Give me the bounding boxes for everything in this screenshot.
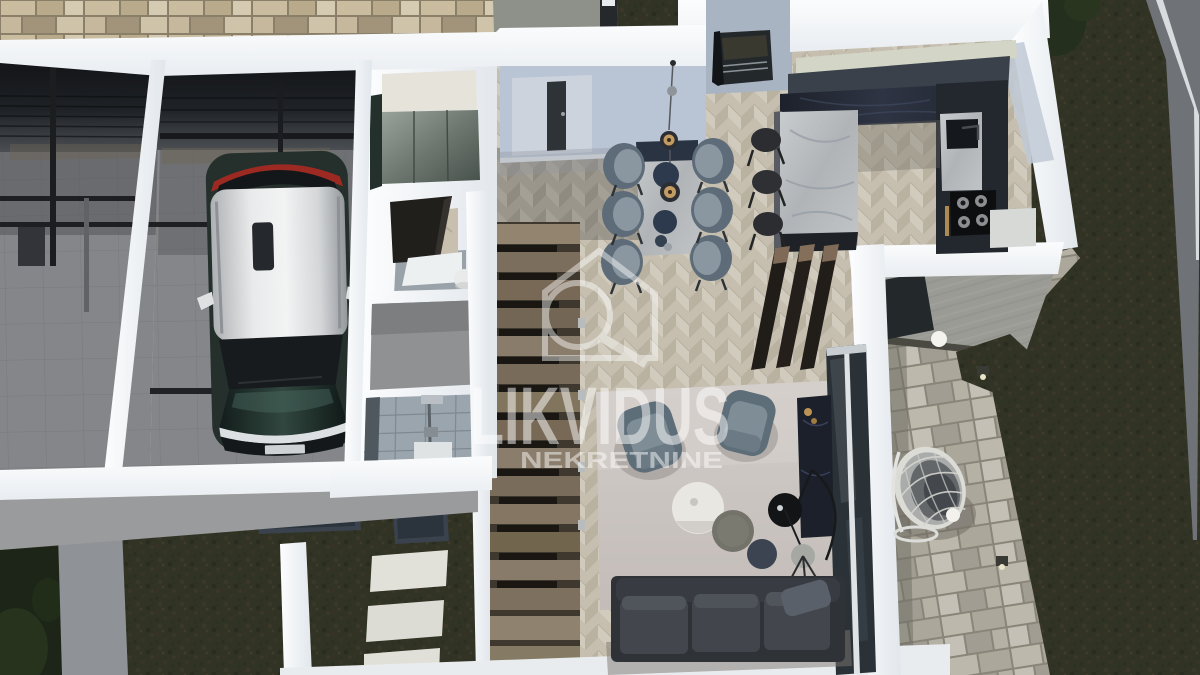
svg-text:NEKRETNINE: NEKRETNINE <box>520 447 723 473</box>
